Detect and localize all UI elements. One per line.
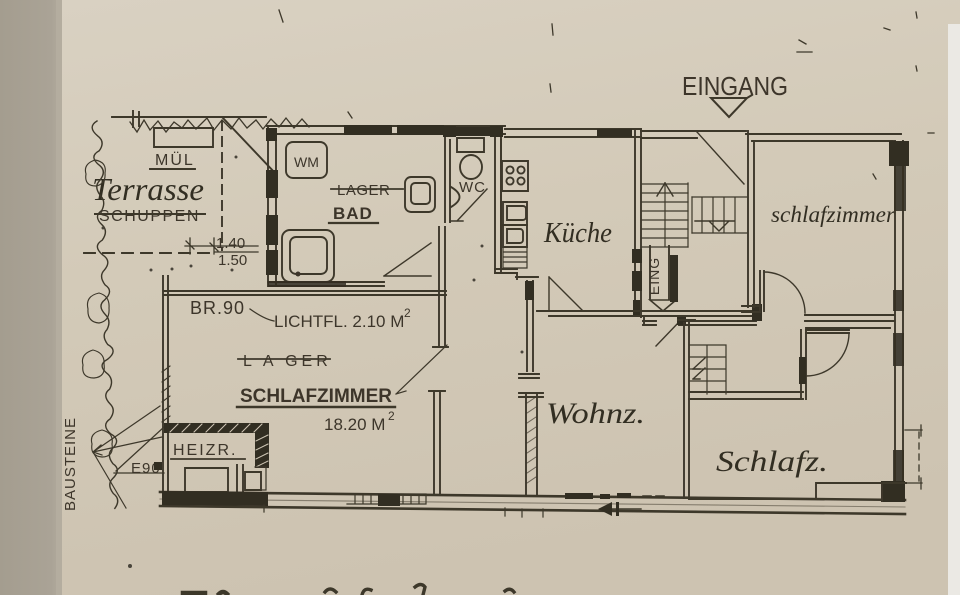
svg-text:BAUSTEINE: BAUSTEINE xyxy=(62,417,79,511)
svg-text:Wohnz.: Wohnz. xyxy=(546,397,645,430)
svg-text:WM: WM xyxy=(294,154,319,170)
svg-text:LAGER: LAGER xyxy=(337,182,390,199)
svg-text:LICHTFL. 2.10 M: LICHTFL. 2.10 M xyxy=(274,312,404,331)
svg-text:SCHLAFZIMMER: SCHLAFZIMMER xyxy=(240,386,392,407)
svg-text:HEIZR.: HEIZR. xyxy=(173,442,237,459)
svg-text:BR.90: BR.90 xyxy=(190,298,245,318)
svg-text:MÜL: MÜL xyxy=(155,151,195,169)
svg-text:BAD: BAD xyxy=(333,204,373,223)
svg-text:Küche: Küche xyxy=(543,218,612,249)
svg-text:EINGANG: EINGANG xyxy=(682,71,788,101)
svg-text:1.40: 1.40 xyxy=(216,235,245,252)
svg-text:1.50: 1.50 xyxy=(218,252,247,269)
svg-text:EING: EING xyxy=(646,257,662,295)
svg-text:schlafzimmer: schlafzimmer xyxy=(771,202,896,227)
svg-text:L A GER: L A GER xyxy=(243,353,332,370)
svg-text:18.20 M: 18.20 M xyxy=(324,415,385,434)
svg-text:2: 2 xyxy=(404,306,411,320)
svg-text:Schlafz.: Schlafz. xyxy=(716,445,828,478)
svg-text:Terrasse: Terrasse xyxy=(92,171,204,207)
svg-text:SCHUPPEN: SCHUPPEN xyxy=(99,208,200,225)
svg-text:2: 2 xyxy=(388,409,395,423)
